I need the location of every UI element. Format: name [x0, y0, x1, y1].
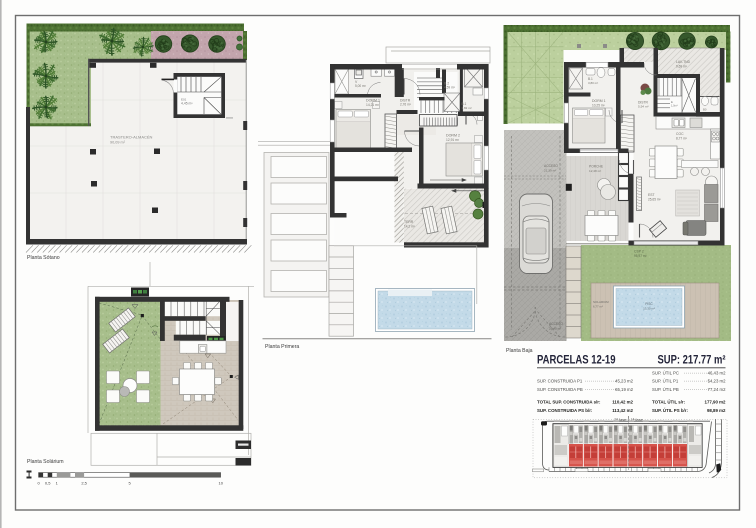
svg-text:5,54 m²: 5,54 m² — [638, 105, 649, 109]
svg-text:DORM 1: DORM 1 — [366, 99, 380, 103]
svg-text:110,42 m2: 110,42 m2 — [612, 400, 633, 405]
svg-text:TOTAL SUP. CONSTRUIDA s/r:: TOTAL SUP. CONSTRUIDA s/r: — [537, 400, 601, 405]
svg-text:SUP: 217.77 m²: SUP: 217.77 m² — [658, 353, 726, 367]
svg-text:2,5: 2,5 — [81, 481, 87, 486]
svg-text:14,2 m²: 14,2 m² — [404, 225, 415, 229]
svg-text:0,5: 0,5 — [45, 481, 51, 486]
svg-text:54,23 m2: 54,23 m2 — [708, 379, 727, 384]
svg-text:TERR: TERR — [404, 220, 414, 224]
svg-text:PARCELAS 12-19: PARCELAS 12-19 — [537, 353, 616, 367]
svg-text:SUP. ÚTIL P1: SUP. ÚTIL P1 — [652, 379, 679, 384]
svg-text:TRASTERO-ALMACÉN: TRASTERO-ALMACÉN — [110, 135, 153, 140]
svg-text:1,0m²: 1,0m² — [671, 104, 678, 108]
svg-text:Planta Solárium: Planta Solárium — [27, 459, 64, 465]
svg-text:PISC: PISC — [645, 302, 653, 306]
svg-text:2,76 m²: 2,76 m² — [400, 103, 411, 107]
svg-text:77,24 m2: 77,24 m2 — [708, 387, 727, 392]
svg-text:B0: B0 — [703, 108, 707, 112]
svg-text:SUP. CONSTRUIDA PB: SUP. CONSTRUIDA PB — [537, 387, 583, 392]
svg-text:113,42 m2: 113,42 m2 — [612, 408, 633, 413]
svg-text:3,82 m²: 3,82 m² — [462, 106, 472, 110]
svg-text:Planta Primera: Planta Primera — [265, 344, 299, 350]
svg-text:Planta Sótano: Planta Sótano — [27, 255, 60, 261]
svg-text:12,91 m²: 12,91 m² — [446, 138, 460, 142]
svg-text:EST: EST — [648, 193, 655, 197]
svg-text:13,30 m²: 13,30 m² — [643, 307, 655, 311]
svg-text:DORM 1: DORM 1 — [592, 99, 606, 103]
svg-text:CSP 2: CSP 2 — [634, 250, 644, 254]
svg-text:46,43 m2: 46,43 m2 — [708, 371, 727, 376]
svg-text:90,09 m²: 90,09 m² — [110, 141, 126, 145]
svg-text:TOTAL ÚTIL s/r:: TOTAL ÚTIL s/r: — [652, 400, 686, 405]
svg-text:8,77 m²: 8,77 m² — [676, 137, 687, 141]
svg-text:4,59 m²: 4,59 m² — [444, 86, 455, 90]
svg-text:12,48 m²: 12,48 m² — [589, 169, 601, 173]
svg-text:SUP. CONSTRUIDA P1: SUP. CONSTRUIDA P1 — [537, 379, 583, 384]
svg-text:10: 10 — [218, 481, 223, 486]
svg-text:SUP. ÚTIL PS b/r:: SUP. ÚTIL PS b/r: — [652, 408, 688, 413]
svg-text:COC: COC — [676, 132, 684, 136]
svg-text:21,39 m²: 21,39 m² — [544, 169, 556, 173]
svg-text:4,45 m²: 4,45 m² — [181, 102, 193, 106]
svg-text:SOLARIUM: SOLARIUM — [593, 300, 609, 304]
svg-text:25,45 m²: 25,45 m² — [549, 327, 561, 331]
svg-text:ACCESO: ACCESO — [549, 322, 563, 326]
svg-text:14,21 m²: 14,21 m² — [366, 103, 380, 107]
svg-text:98,89 m2: 98,89 m2 — [707, 408, 726, 413]
svg-text:DORM 2: DORM 2 — [446, 134, 460, 138]
svg-text:65,19 m2: 65,19 m2 — [615, 387, 634, 392]
svg-text:E: E — [671, 100, 673, 104]
svg-text:LAV-TND: LAV-TND — [676, 60, 691, 64]
svg-text:3,80 m²: 3,80 m² — [588, 81, 598, 85]
svg-text:25,65 m²: 25,65 m² — [648, 198, 661, 202]
svg-text:PORCHE: PORCHE — [589, 165, 604, 169]
svg-text:6,77 m²: 6,77 m² — [593, 305, 603, 309]
svg-text:9,69 m²: 9,69 m² — [676, 65, 687, 69]
svg-text:ACCESO: ACCESO — [544, 164, 558, 168]
svg-text:5,00 m²: 5,00 m² — [355, 84, 366, 88]
svg-text:45,23 m2: 45,23 m2 — [615, 379, 634, 384]
svg-text:95,97 m²: 95,97 m² — [634, 254, 647, 258]
svg-text:SUP. ÚTIL PC: SUP. ÚTIL PC — [652, 371, 679, 376]
svg-text:Planta Baja: Planta Baja — [506, 348, 533, 354]
svg-text:177,90 m2: 177,90 m2 — [705, 400, 727, 405]
svg-text:SUP. CONSTRUIDA PS b/r:: SUP. CONSTRUIDA PS b/r: — [537, 408, 593, 413]
svg-text:SUP. ÚTIL PB: SUP. ÚTIL PB — [652, 387, 679, 392]
svg-text:10,25 m²: 10,25 m² — [592, 104, 605, 108]
